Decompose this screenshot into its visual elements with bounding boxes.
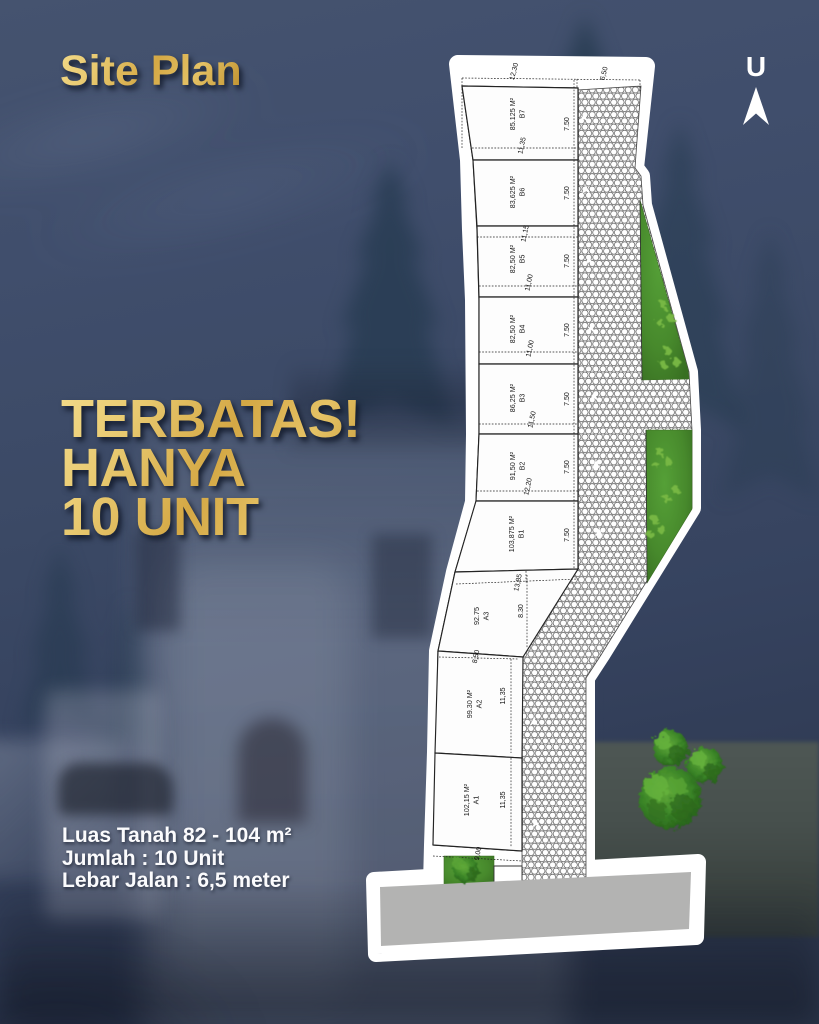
svg-text:7.50: 7.50 (564, 528, 571, 542)
svg-text:11,35: 11,35 (500, 791, 507, 808)
svg-text:7.50: 7.50 (564, 323, 571, 337)
svg-text:7.50: 7.50 (564, 117, 571, 131)
svg-text:11,35: 11,35 (500, 687, 507, 704)
svg-text:7.50: 7.50 (564, 392, 571, 406)
svg-text:7.50: 7.50 (564, 460, 571, 474)
svg-text:7.50: 7.50 (564, 254, 571, 268)
svg-text:8.30: 8.30 (518, 604, 525, 618)
svg-text:7.50: 7.50 (564, 186, 571, 200)
